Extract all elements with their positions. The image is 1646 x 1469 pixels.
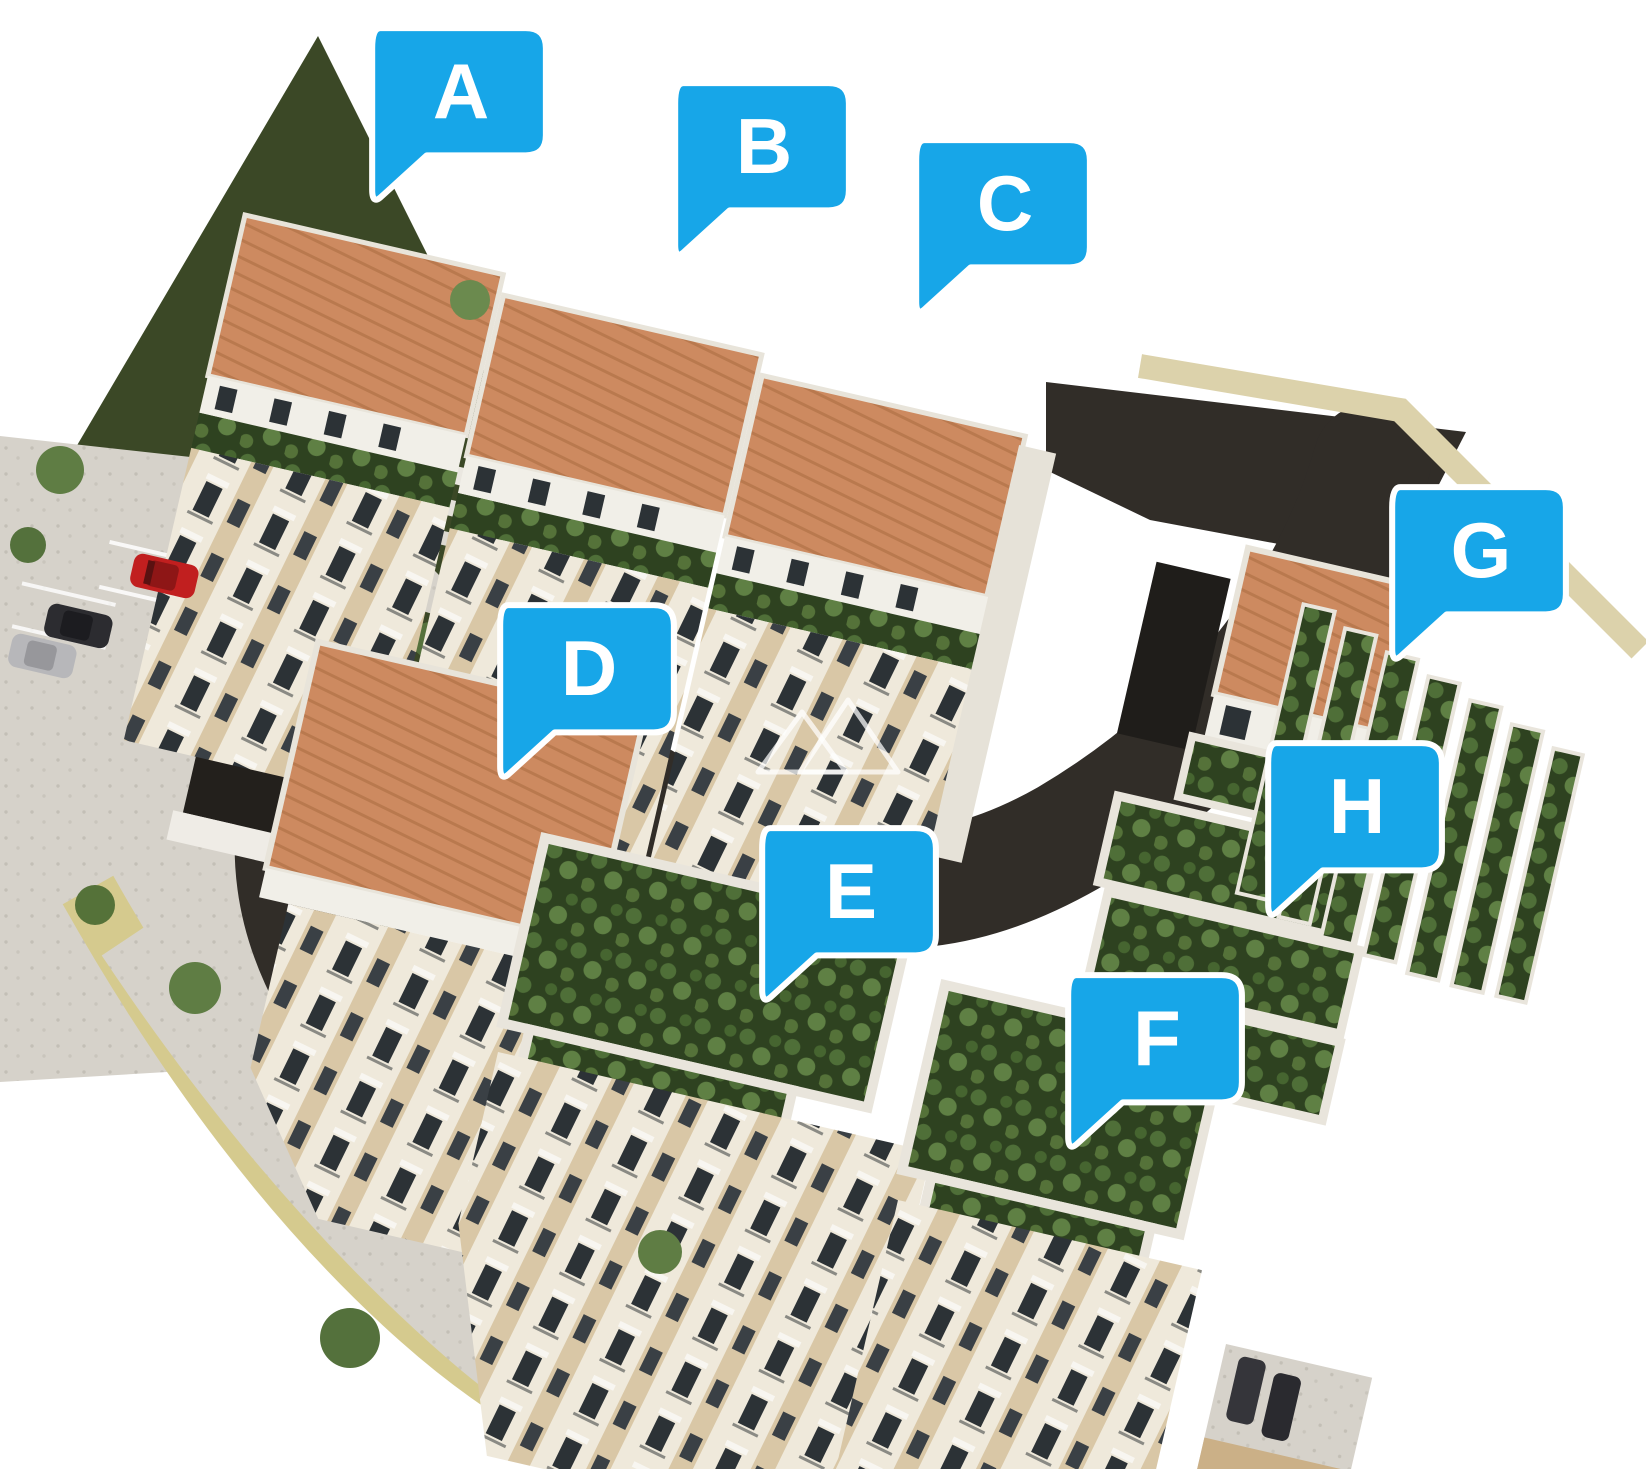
building-marker-f[interactable]: F [1052, 969, 1252, 1161]
building-marker-g[interactable]: G [1376, 481, 1576, 673]
site-plan-screenshot: A B C D E F G H [0, 0, 1646, 1469]
building-marker-e[interactable]: E [746, 822, 946, 1014]
building-marker-a[interactable]: A [356, 22, 556, 214]
building-marker-d[interactable]: D [484, 599, 684, 791]
building-marker-h[interactable]: H [1252, 737, 1452, 929]
building-marker-c[interactable]: C [900, 134, 1100, 326]
building-marker-b[interactable]: B [659, 77, 859, 269]
